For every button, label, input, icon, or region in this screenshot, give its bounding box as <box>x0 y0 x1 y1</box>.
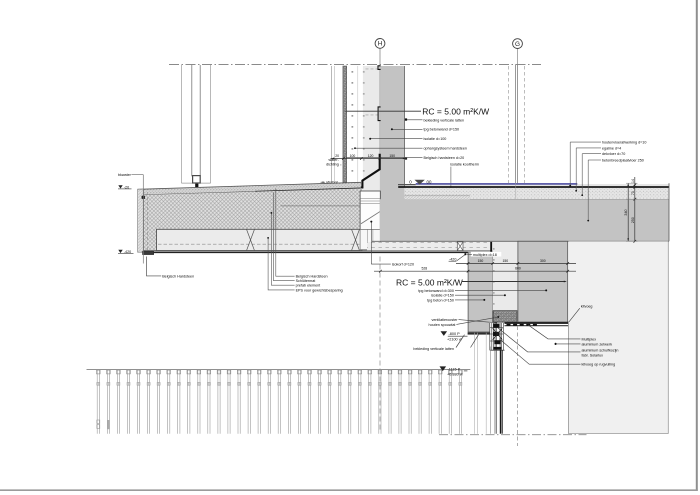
svg-text:houten spouwlat: houten spouwlat <box>429 323 456 327</box>
svg-text:Belgisch hardsteen d=20: Belgisch hardsteen d=20 <box>424 156 465 160</box>
svg-text:isolatie d=100: isolatie d=100 <box>424 137 447 141</box>
svg-text:tpg betonwand d=150: tpg betonwand d=150 <box>424 128 460 132</box>
svg-text:bekleding verticale latten: bekleding verticale latten <box>424 118 465 122</box>
svg-text:150: 150 <box>502 259 508 263</box>
svg-text:Multiplex: Multiplex <box>582 337 597 341</box>
svg-text:tpg beton d=150: tpg beton d=150 <box>427 298 454 302</box>
svg-text:multiplex d=18: multiplex d=18 <box>473 253 497 257</box>
svg-text:H: H <box>378 41 383 48</box>
svg-text:aluminium schuifkozijn: aluminium schuifkozijn <box>582 349 619 353</box>
svg-text:Belgisch Hardsteen: Belgisch Hardsteen <box>296 275 328 279</box>
svg-text:kitvoeg op rugvulling: kitvoeg op rugvulling <box>582 362 616 366</box>
svg-text:prefab element: prefab element <box>296 284 321 288</box>
svg-text:300: 300 <box>540 259 546 263</box>
svg-text:water-: water- <box>329 158 340 162</box>
svg-text:RC = 5.00 m²K/W: RC = 5.00 m²K/W <box>396 277 463 287</box>
svg-text:RC = 5.00 m²K/W: RC = 5.00 m²K/W <box>422 107 489 117</box>
svg-text:EPS voor gewichtsbesparing: EPS voor gewichtsbesparing <box>296 288 343 292</box>
svg-text:Belgisch Hardsteen: Belgisch Hardsteen <box>162 274 194 278</box>
svg-text:340: 340 <box>624 209 628 215</box>
svg-text:tpg betonwand d=300: tpg betonwand d=300 <box>418 289 454 293</box>
svg-text:bkwater: bkwater <box>118 173 132 177</box>
svg-text:isokorf d=120: isokorf d=120 <box>392 263 414 267</box>
svg-text:70: 70 <box>631 191 635 195</box>
svg-text:+2100 vl: +2100 vl <box>447 338 462 342</box>
svg-text:14: 14 <box>631 179 635 183</box>
svg-text:bekleding verticale latten: bekleding verticale latten <box>413 347 454 351</box>
svg-text:houtenvloerafwerking d=10: houtenvloerafwerking d=10 <box>602 141 646 145</box>
svg-text:ophangsysteem hardsteen: ophangsysteem hardsteen <box>424 147 467 151</box>
svg-text:ventilatierooster: ventilatierooster <box>431 318 458 322</box>
svg-text:G: G <box>515 41 520 48</box>
svg-text:dichting: dichting <box>326 163 339 167</box>
svg-text:fabr. Solarlux: fabr. Solarlux <box>582 354 604 358</box>
svg-text:528: 528 <box>421 267 427 271</box>
svg-text:kitvoeg: kitvoeg <box>581 305 593 309</box>
svg-text:600: 600 <box>515 267 521 271</box>
svg-text:250: 250 <box>631 217 635 223</box>
svg-text:150: 150 <box>478 259 484 263</box>
svg-text:-1115 P: -1115 P <box>448 367 461 371</box>
svg-text:-420: -420 <box>449 257 456 261</box>
svg-text:00: 00 <box>427 179 432 184</box>
svg-text:dekvloer d=70: dekvloer d=70 <box>602 152 625 156</box>
svg-text:+0.880 vl: +0.880 vl <box>447 373 463 377</box>
svg-text:isolatie d=150: isolatie d=150 <box>431 294 454 298</box>
svg-text:-800 P: -800 P <box>449 332 461 336</box>
svg-text:aluminium zetwerk: aluminium zetwerk <box>582 342 613 346</box>
svg-text:isolatie kooltherm: isolatie kooltherm <box>450 163 479 167</box>
svg-text:betonbreedplaatvloer 250: betonbreedplaatvloer 250 <box>602 158 644 162</box>
svg-text:egaline d=4: egaline d=4 <box>602 146 621 150</box>
svg-text:Schlütermat: Schlütermat <box>296 279 316 283</box>
